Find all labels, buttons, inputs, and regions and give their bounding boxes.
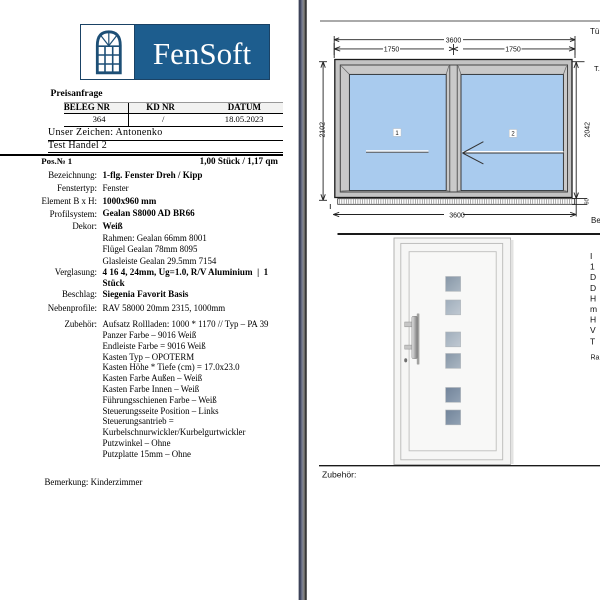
svg-text:T: T (590, 337, 595, 347)
svg-text:H: H (590, 315, 596, 325)
svg-text:T.: T. (594, 64, 600, 73)
svg-text:D: D (590, 283, 596, 293)
svg-text:2102: 2102 (319, 122, 326, 138)
svg-text:3600: 3600 (446, 38, 462, 45)
svg-text:Be: Be (591, 216, 600, 225)
svg-text:H: H (590, 293, 596, 303)
svg-text:Ra: Ra (591, 355, 600, 362)
svg-text:m: m (590, 304, 597, 314)
svg-text:2042: 2042 (584, 122, 591, 138)
svg-text:60: 60 (585, 198, 591, 204)
svg-text:3600: 3600 (449, 212, 465, 219)
svg-text:D: D (590, 272, 596, 282)
svg-text:Tü: Tü (590, 27, 599, 36)
svg-text:Zubehör:: Zubehör: (322, 469, 356, 479)
svg-text:1: 1 (590, 262, 595, 272)
svg-text:1750: 1750 (505, 47, 521, 54)
svg-text:1750: 1750 (384, 47, 400, 54)
svg-text:V: V (590, 325, 596, 335)
svg-text:I: I (590, 251, 592, 261)
